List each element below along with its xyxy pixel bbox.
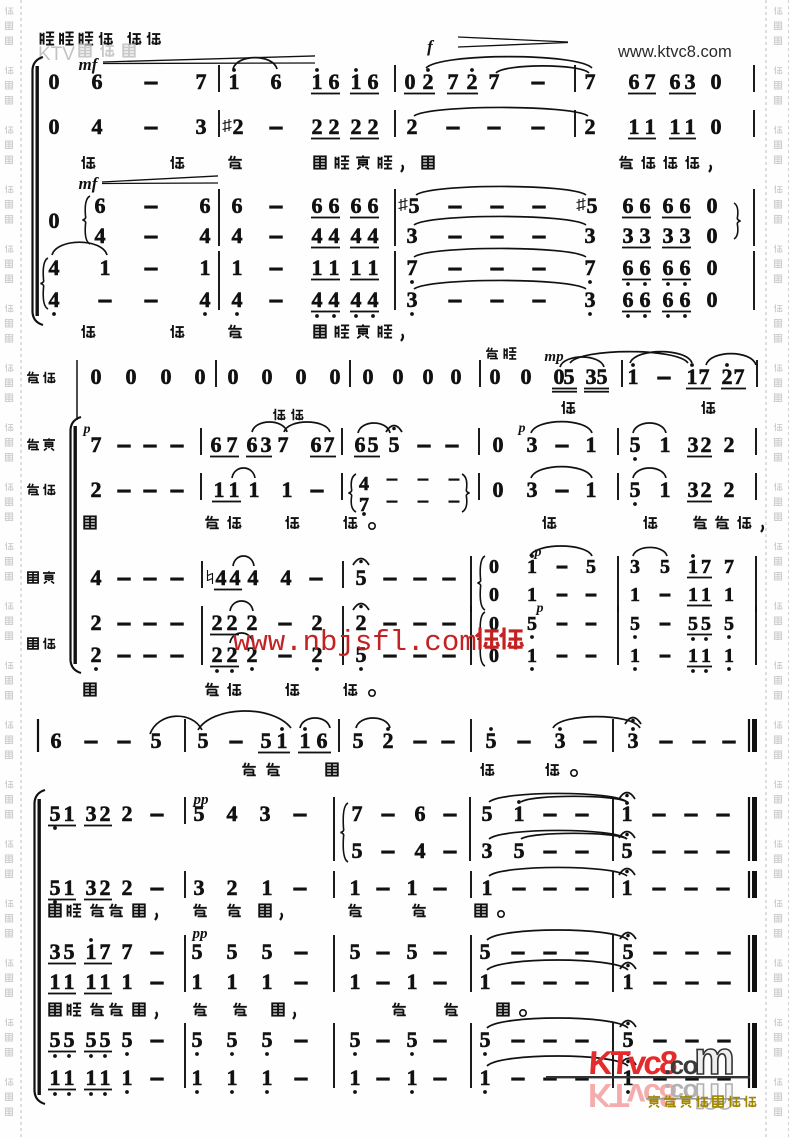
svg-text:0: 0 (707, 287, 718, 312)
svg-text:0: 0 (711, 69, 722, 94)
svg-text:0: 0 (493, 477, 504, 502)
svg-text:7: 7 (352, 801, 363, 826)
svg-text:4: 4 (351, 287, 362, 312)
svg-text:5: 5 (86, 1027, 97, 1052)
svg-text:1: 1 (100, 969, 111, 994)
svg-text:2: 2 (722, 364, 733, 389)
svg-text:6: 6 (623, 193, 634, 218)
svg-text:5: 5 (630, 432, 641, 457)
svg-text:5: 5 (597, 364, 608, 389)
svg-text:1: 1 (527, 645, 537, 667)
svg-text:5: 5 (688, 613, 698, 635)
svg-text:7: 7 (585, 69, 596, 94)
svg-text:5: 5 (623, 939, 634, 964)
svg-text:3: 3 (640, 223, 651, 248)
svg-text:4: 4 (281, 565, 292, 590)
svg-text:1: 1 (86, 939, 97, 964)
svg-text:6: 6 (640, 287, 651, 312)
svg-text:1: 1 (724, 645, 734, 667)
svg-text:2: 2 (724, 432, 735, 457)
svg-text:2: 2 (227, 875, 238, 900)
svg-text:4: 4 (230, 565, 241, 590)
svg-text:2: 2 (351, 114, 362, 139)
svg-text:4: 4 (92, 114, 103, 139)
svg-text:2: 2 (312, 114, 323, 139)
svg-text:1: 1 (586, 477, 597, 502)
svg-text:1: 1 (660, 432, 671, 457)
svg-text:1: 1 (312, 69, 323, 94)
svg-text:5: 5 (356, 565, 367, 590)
svg-text:0: 0 (161, 364, 172, 389)
svg-text:4: 4 (91, 565, 102, 590)
svg-text:5: 5 (352, 838, 363, 863)
svg-text:7: 7 (122, 939, 133, 964)
svg-text:1: 1 (192, 969, 203, 994)
svg-text:1: 1 (350, 969, 361, 994)
svg-text:3: 3 (527, 477, 538, 502)
svg-text:7: 7 (91, 432, 102, 457)
svg-text:3: 3 (407, 223, 418, 248)
svg-text:6: 6 (368, 69, 379, 94)
svg-text:1: 1 (277, 728, 288, 753)
svg-text:1: 1 (100, 1065, 111, 1090)
svg-text:1: 1 (262, 1065, 273, 1090)
svg-text:4: 4 (49, 287, 60, 312)
svg-text:5: 5 (480, 939, 491, 964)
svg-text:7: 7 (724, 556, 734, 578)
svg-text:1: 1 (192, 1065, 203, 1090)
svg-text:3: 3 (688, 432, 699, 457)
svg-text:5: 5 (100, 1027, 111, 1052)
svg-text:2: 2 (701, 477, 712, 502)
svg-text:p: p (83, 422, 91, 437)
svg-text:1: 1 (229, 477, 240, 502)
svg-text:1: 1 (282, 477, 293, 502)
svg-text:2: 2 (368, 114, 379, 139)
svg-text:6: 6 (670, 69, 681, 94)
svg-text:1: 1 (86, 969, 97, 994)
svg-text:6: 6 (629, 69, 640, 94)
svg-text:7: 7 (645, 69, 656, 94)
svg-text:4: 4 (359, 473, 369, 495)
svg-text:1: 1 (351, 255, 362, 280)
svg-text:4: 4 (329, 223, 340, 248)
svg-text:4: 4 (368, 287, 379, 312)
svg-text:1: 1 (688, 556, 698, 578)
svg-text:3: 3 (685, 69, 696, 94)
svg-text:1: 1 (688, 584, 698, 606)
svg-text:www.nbjsfl.com: www.nbjsfl.com (233, 626, 477, 659)
svg-text:0: 0 (711, 114, 722, 139)
svg-text:6: 6 (211, 432, 222, 457)
svg-text:5: 5 (409, 193, 420, 218)
svg-text:5: 5 (50, 875, 61, 900)
svg-text:4: 4 (248, 565, 259, 590)
svg-text:0: 0 (262, 364, 273, 389)
svg-text:3: 3 (555, 728, 566, 753)
svg-text:3: 3 (194, 875, 205, 900)
svg-text:0: 0 (296, 364, 307, 389)
svg-text:6: 6 (312, 193, 323, 218)
svg-text:7: 7 (196, 69, 207, 94)
svg-text:2: 2 (724, 477, 735, 502)
svg-text:2: 2 (423, 69, 434, 94)
svg-text:0: 0 (707, 223, 718, 248)
svg-text:mf: mf (79, 174, 100, 193)
svg-text:1: 1 (300, 728, 311, 753)
svg-text:1: 1 (514, 801, 525, 826)
svg-text:1: 1 (122, 1065, 133, 1090)
svg-text:4: 4 (227, 801, 238, 826)
svg-text:7: 7 (701, 556, 711, 578)
svg-text:5: 5 (630, 613, 640, 635)
svg-text:0: 0 (91, 364, 102, 389)
svg-text:1: 1 (329, 255, 340, 280)
svg-text:1: 1 (480, 969, 491, 994)
svg-text:1: 1 (480, 1065, 491, 1090)
svg-text:6: 6 (368, 193, 379, 218)
svg-text:2: 2 (91, 477, 102, 502)
svg-text:6: 6 (271, 69, 282, 94)
svg-text:5: 5 (227, 939, 238, 964)
svg-text:1: 1 (622, 875, 633, 900)
svg-text:0: 0 (405, 69, 416, 94)
svg-text:1: 1 (122, 969, 133, 994)
svg-text:2: 2 (100, 801, 111, 826)
svg-text:5: 5 (701, 613, 711, 635)
svg-text:4: 4 (415, 838, 426, 863)
svg-text:4: 4 (312, 223, 323, 248)
svg-text:5: 5 (64, 1027, 75, 1052)
svg-text:5: 5 (482, 801, 493, 826)
svg-text:5: 5 (64, 939, 75, 964)
svg-text:1: 1 (350, 1065, 361, 1090)
svg-text:2: 2 (407, 114, 418, 139)
svg-text:6: 6 (92, 69, 103, 94)
svg-text:5: 5 (564, 364, 575, 389)
svg-text:3: 3 (261, 432, 272, 457)
svg-text:1: 1 (249, 477, 260, 502)
svg-text:5: 5 (192, 1027, 203, 1052)
svg-text:2: 2 (467, 69, 478, 94)
svg-text:0: 0 (490, 364, 501, 389)
svg-text:5: 5 (586, 556, 596, 578)
svg-text:2: 2 (383, 728, 394, 753)
svg-text:0: 0 (195, 364, 206, 389)
svg-text:5: 5 (227, 1027, 238, 1052)
svg-text:6: 6 (663, 255, 674, 280)
svg-text:2: 2 (701, 432, 712, 457)
svg-text:1: 1 (232, 255, 243, 280)
svg-text:5: 5 (198, 728, 209, 753)
svg-text:3: 3 (50, 939, 61, 964)
svg-text:1: 1 (701, 584, 711, 606)
svg-text:5: 5 (622, 838, 633, 863)
svg-text:0: 0 (228, 364, 239, 389)
svg-text:6: 6 (623, 255, 634, 280)
svg-text:0: 0 (363, 364, 374, 389)
svg-text:0: 0 (49, 69, 60, 94)
svg-text:1: 1 (407, 875, 418, 900)
svg-text:1: 1 (724, 584, 734, 606)
svg-text:4: 4 (351, 223, 362, 248)
svg-text:3: 3 (586, 364, 597, 389)
svg-text:1: 1 (660, 477, 671, 502)
svg-text:0: 0 (489, 584, 499, 606)
svg-text:5: 5 (587, 193, 598, 218)
svg-text:1: 1 (200, 255, 211, 280)
svg-text:3: 3 (86, 875, 97, 900)
svg-text:6: 6 (329, 193, 340, 218)
svg-text:1: 1 (482, 875, 493, 900)
svg-text:7: 7 (407, 255, 418, 280)
svg-text:4: 4 (368, 223, 379, 248)
svg-text:1: 1 (630, 584, 640, 606)
svg-text:1: 1 (527, 584, 537, 606)
svg-text:.co: .co (664, 1050, 698, 1080)
svg-text:1: 1 (100, 255, 111, 280)
svg-text:3: 3 (630, 556, 640, 578)
svg-text:1: 1 (351, 69, 362, 94)
svg-text:5: 5 (262, 1027, 273, 1052)
svg-text:1: 1 (407, 969, 418, 994)
svg-text:2: 2 (585, 114, 596, 139)
svg-text:6: 6 (200, 193, 211, 218)
svg-text:5: 5 (514, 838, 525, 863)
svg-text:6: 6 (663, 193, 674, 218)
svg-text:1: 1 (368, 255, 379, 280)
svg-text:p: p (518, 421, 526, 436)
svg-text:1: 1 (64, 801, 75, 826)
svg-text:5: 5 (151, 728, 162, 753)
svg-text:0: 0 (451, 364, 462, 389)
svg-text:1: 1 (645, 114, 656, 139)
svg-text:1: 1 (527, 556, 537, 578)
svg-text:1: 1 (629, 114, 640, 139)
svg-text:4: 4 (49, 255, 60, 280)
svg-text:0: 0 (423, 364, 434, 389)
svg-text:6: 6 (247, 432, 258, 457)
svg-text:5: 5 (50, 801, 61, 826)
svg-text:1: 1 (630, 645, 640, 667)
svg-text:0: 0 (49, 208, 60, 233)
svg-text:6: 6 (317, 728, 328, 753)
svg-text:2: 2 (91, 610, 102, 635)
svg-text:3: 3 (260, 801, 271, 826)
svg-text:6: 6 (680, 193, 691, 218)
svg-text:7: 7 (699, 364, 710, 389)
svg-text:7: 7 (324, 432, 335, 457)
svg-text:2: 2 (100, 875, 111, 900)
svg-text:3: 3 (527, 432, 538, 457)
svg-text:0: 0 (393, 364, 404, 389)
svg-text:2: 2 (329, 114, 340, 139)
svg-text:2: 2 (91, 642, 102, 667)
svg-text:3: 3 (407, 287, 418, 312)
svg-text:0: 0 (707, 193, 718, 218)
svg-text:5: 5 (407, 939, 418, 964)
svg-text:5: 5 (192, 939, 203, 964)
svg-text:0: 0 (489, 556, 499, 578)
svg-text:6: 6 (329, 69, 340, 94)
svg-text:3: 3 (482, 838, 493, 863)
svg-text:3: 3 (585, 223, 596, 248)
svg-text:5: 5 (262, 939, 273, 964)
svg-text:5: 5 (368, 432, 379, 457)
svg-text:1: 1 (312, 255, 323, 280)
svg-text:1: 1 (262, 969, 273, 994)
svg-text:3: 3 (585, 287, 596, 312)
svg-text:1: 1 (64, 1065, 75, 1090)
svg-text:1: 1 (586, 432, 597, 457)
svg-text:2: 2 (122, 801, 133, 826)
svg-text:1: 1 (670, 114, 681, 139)
svg-text:KTV: KTV (38, 44, 75, 65)
svg-text:4: 4 (329, 287, 340, 312)
svg-text:3: 3 (663, 223, 674, 248)
svg-text:4: 4 (216, 565, 227, 590)
svg-text:2: 2 (212, 610, 223, 635)
svg-text:5: 5 (407, 1027, 418, 1052)
svg-text:6: 6 (415, 801, 426, 826)
svg-text:1: 1 (50, 1065, 61, 1090)
svg-text:6: 6 (640, 193, 651, 218)
svg-text:1: 1 (50, 969, 61, 994)
svg-text:3: 3 (86, 801, 97, 826)
svg-text:5: 5 (350, 939, 361, 964)
svg-text:6: 6 (663, 287, 674, 312)
svg-text:www.ktvc8.com: www.ktvc8.com (617, 43, 732, 61)
svg-text:1: 1 (628, 364, 639, 389)
svg-text:3: 3 (623, 223, 634, 248)
svg-text:5: 5 (527, 613, 537, 635)
svg-text:1: 1 (64, 969, 75, 994)
svg-text:2: 2 (233, 114, 244, 139)
svg-text:5: 5 (660, 556, 670, 578)
svg-text:1: 1 (623, 969, 634, 994)
svg-text:1: 1 (86, 1065, 97, 1090)
svg-text:1: 1 (214, 477, 225, 502)
svg-text:1: 1 (64, 875, 75, 900)
svg-text:6: 6 (232, 193, 243, 218)
svg-text:7: 7 (734, 364, 745, 389)
svg-text:0: 0 (493, 432, 504, 457)
svg-text:6: 6 (680, 255, 691, 280)
svg-text:6: 6 (623, 287, 634, 312)
svg-text:3: 3 (628, 728, 639, 753)
svg-text:7: 7 (585, 255, 596, 280)
svg-text:6: 6 (95, 193, 106, 218)
svg-text:7: 7 (227, 432, 238, 457)
svg-text:1: 1 (701, 645, 711, 667)
svg-text:7: 7 (278, 432, 289, 457)
svg-text:6: 6 (355, 432, 366, 457)
svg-text:1: 1 (262, 875, 273, 900)
svg-text:1: 1 (688, 645, 698, 667)
svg-text:1: 1 (229, 69, 240, 94)
svg-text:6: 6 (640, 255, 651, 280)
svg-text:1: 1 (407, 1065, 418, 1090)
svg-text:6: 6 (680, 287, 691, 312)
svg-text:5: 5 (50, 1027, 61, 1052)
svg-text:5: 5 (122, 1027, 133, 1052)
svg-text:5: 5 (724, 613, 734, 635)
svg-text:4: 4 (200, 287, 211, 312)
svg-text:5: 5 (486, 728, 497, 753)
svg-text:4: 4 (232, 223, 243, 248)
svg-text:3: 3 (196, 114, 207, 139)
svg-text:5: 5 (194, 801, 205, 826)
svg-text:3: 3 (688, 477, 699, 502)
svg-text:mp: mp (544, 349, 564, 365)
svg-text:3: 3 (680, 223, 691, 248)
svg-text:0: 0 (126, 364, 137, 389)
svg-text:1: 1 (227, 969, 238, 994)
svg-text:4: 4 (232, 287, 243, 312)
svg-text:5: 5 (630, 477, 641, 502)
svg-text:0: 0 (521, 364, 532, 389)
svg-text:0: 0 (330, 364, 341, 389)
svg-text:6: 6 (351, 193, 362, 218)
svg-text:7: 7 (489, 69, 500, 94)
svg-text:7: 7 (448, 69, 459, 94)
svg-text:5: 5 (389, 432, 400, 457)
svg-text:1: 1 (685, 114, 696, 139)
svg-text:1: 1 (227, 1065, 238, 1090)
svg-text:7: 7 (100, 939, 111, 964)
svg-text:6: 6 (311, 432, 322, 457)
svg-text:5: 5 (353, 728, 364, 753)
svg-text:2: 2 (122, 875, 133, 900)
svg-text:2: 2 (212, 642, 223, 667)
svg-text:4: 4 (200, 223, 211, 248)
svg-text:5: 5 (350, 1027, 361, 1052)
svg-text:5: 5 (480, 1027, 491, 1052)
svg-text:0: 0 (707, 255, 718, 280)
svg-text:6: 6 (51, 728, 62, 753)
svg-text:5: 5 (261, 728, 272, 753)
svg-text:1: 1 (350, 875, 361, 900)
svg-text:1: 1 (687, 364, 698, 389)
svg-text:0: 0 (49, 114, 60, 139)
svg-text:4: 4 (312, 287, 323, 312)
